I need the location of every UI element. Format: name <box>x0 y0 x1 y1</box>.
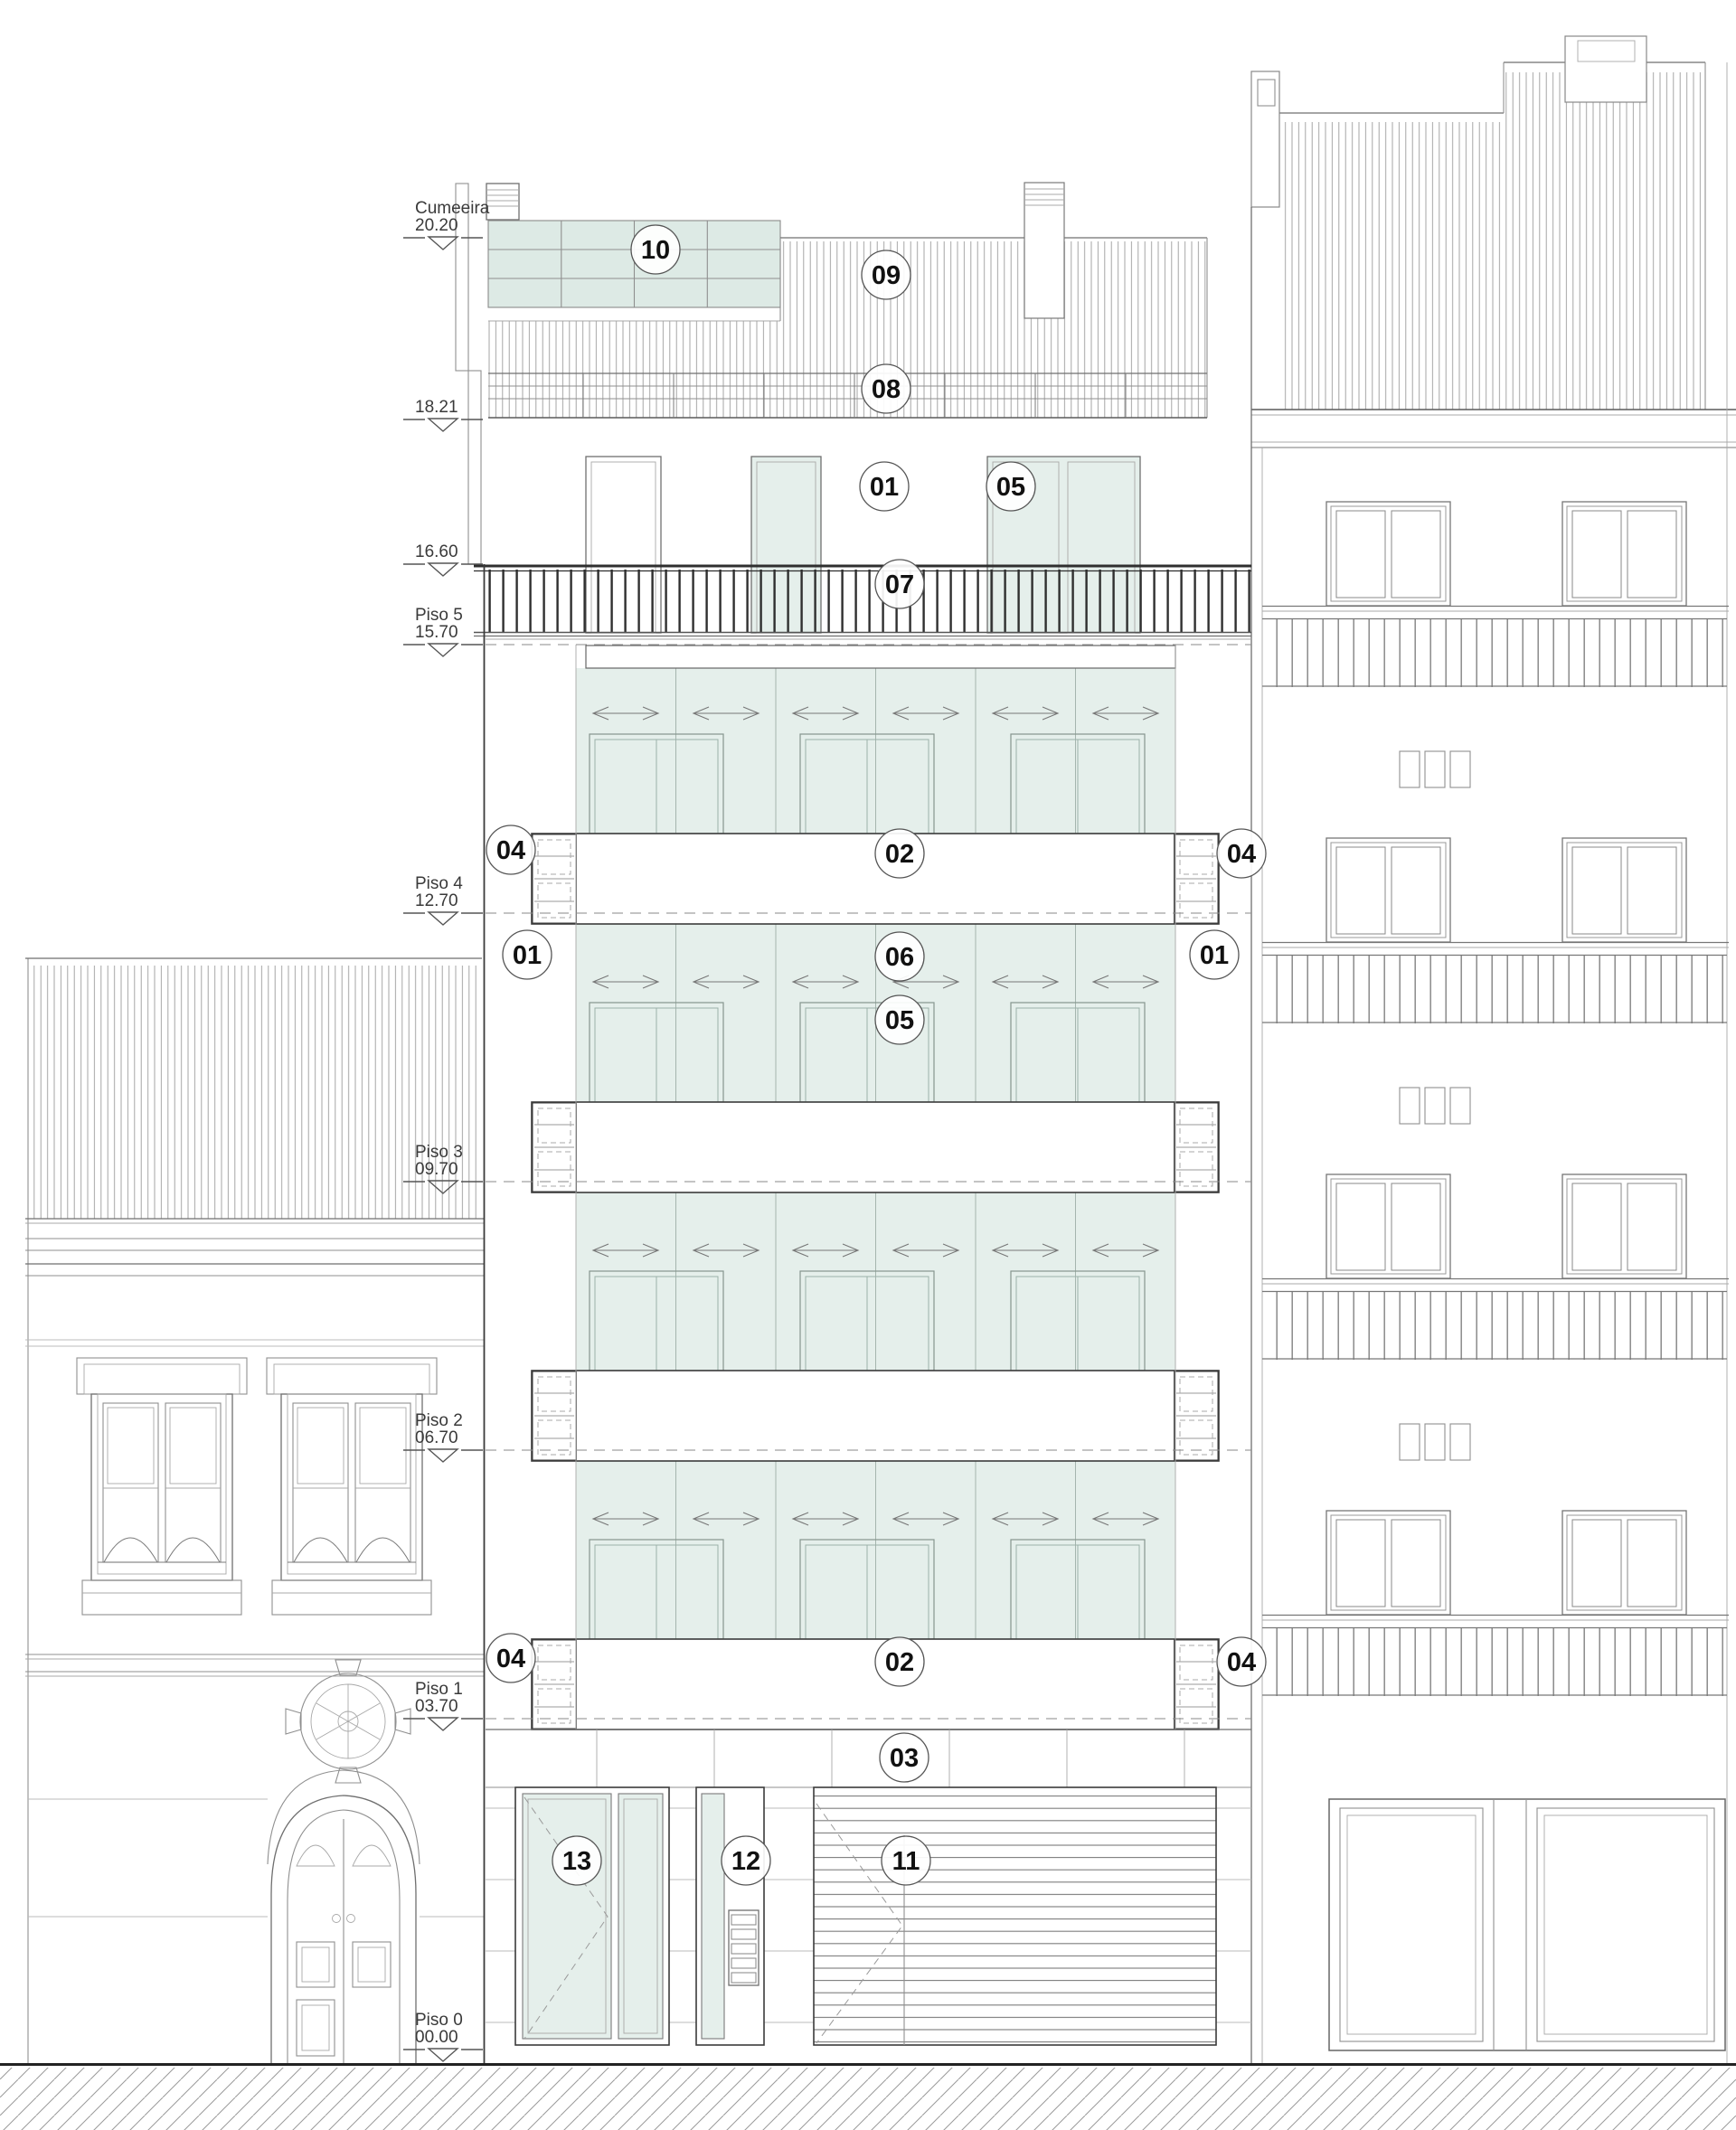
callout-10-solar: 10 <box>631 225 680 274</box>
level-triangle-icon <box>403 237 483 250</box>
facade-elevation-svg: Cumeeira 20.20 18.21 16.60 Piso 5 15.70 … <box>0 0 1736 2130</box>
level-marker-piso5: Piso 5 15.70 <box>403 606 483 656</box>
svg-text:11: 11 <box>892 1847 920 1876</box>
svg-text:05: 05 <box>885 1006 914 1035</box>
svg-text:10: 10 <box>641 236 670 265</box>
level-elevation: 20.20 <box>415 216 458 235</box>
level-triangle-icon <box>403 912 483 925</box>
level-elevation: 18.21 <box>415 398 458 417</box>
svg-text:08: 08 <box>872 375 901 404</box>
level-name: Piso 3 <box>415 1143 463 1162</box>
svg-text:07: 07 <box>885 570 914 599</box>
callout-01-penthouse: 01 <box>860 462 909 511</box>
callout-09-roof: 09 <box>862 250 910 299</box>
svg-text:13: 13 <box>562 1847 591 1876</box>
callout-02-upper: 02 <box>875 829 924 878</box>
entry-door-12 <box>696 1787 764 2045</box>
svg-text:04: 04 <box>496 1645 525 1673</box>
svg-text:04: 04 <box>1227 1648 1256 1677</box>
balcony-band-piso3 <box>532 1102 1219 1192</box>
callout-03-plinth: 03 <box>880 1733 929 1782</box>
roof-box <box>1565 36 1646 102</box>
callout-04-upper-right: 04 <box>1217 829 1266 878</box>
roof-solar-panels <box>488 221 780 307</box>
beam <box>586 646 1175 668</box>
building-left-neighbour <box>25 958 484 2064</box>
svg-text:02: 02 <box>885 1648 914 1677</box>
left-building-arched-door <box>268 1770 420 2064</box>
chimney-left <box>486 184 519 220</box>
svg-text:01: 01 <box>513 941 542 970</box>
left-building-cornice <box>25 1239 484 1346</box>
callout-12-service-door: 12 <box>722 1836 770 1885</box>
callout-04-lower-left: 04 <box>486 1634 535 1682</box>
level-marker-1821: 18.21 <box>403 398 483 431</box>
level-elevation: 03.70 <box>415 1697 458 1716</box>
roof-eave-band <box>488 373 1207 418</box>
callout-06-glazing: 06 <box>875 932 924 981</box>
callout-07-railing: 07 <box>875 560 924 608</box>
level-triangle-icon <box>403 563 483 576</box>
svg-text:05: 05 <box>996 473 1025 502</box>
svg-text:03: 03 <box>890 1744 919 1773</box>
right-building-cornice <box>1251 410 1736 448</box>
level-elevation: 06.70 <box>415 1428 458 1447</box>
callout-05-glazing: 05 <box>875 995 924 1044</box>
level-triangle-icon <box>403 419 483 431</box>
svg-text:12: 12 <box>731 1847 760 1876</box>
svg-text:04: 04 <box>1227 840 1256 869</box>
elevation-drawing: Cumeeira 20.20 18.21 16.60 Piso 5 15.70 … <box>0 0 1736 2130</box>
svg-text:01: 01 <box>1200 941 1229 970</box>
level-name: Cumeeira <box>415 199 490 218</box>
level-marker-1660: 16.60 <box>403 542 483 576</box>
level-triangle-icon <box>403 1449 483 1462</box>
level-name: Piso 1 <box>415 1680 463 1699</box>
terrace-railing <box>474 566 1251 633</box>
level-marker-piso4: Piso 4 12.70 <box>403 874 483 925</box>
chimney-right <box>1024 183 1064 318</box>
level-elevation: 00.00 <box>415 2028 458 2047</box>
svg-text:06: 06 <box>885 943 914 972</box>
building-center-subject <box>456 183 1251 2064</box>
level-marker-cumeeira: Cumeeira 20.20 <box>403 199 490 250</box>
right-building-floor-3 <box>1262 838 1729 1023</box>
garage-door-11 <box>814 1787 1216 2045</box>
callout-08-eave: 08 <box>862 364 910 413</box>
right-building-storefront <box>1329 1799 1725 2050</box>
entry-door-13 <box>515 1787 669 2045</box>
parapet-lower <box>468 371 481 564</box>
curtain-wall-floor-2 <box>576 1192 1175 1371</box>
callout-05-penthouse: 05 <box>986 462 1035 511</box>
level-elevation: 16.60 <box>415 542 458 561</box>
balcony-band-piso4 <box>532 834 1219 924</box>
level-elevation: 09.70 <box>415 1160 458 1179</box>
level-marker-piso2: Piso 2 06.70 <box>403 1411 483 1462</box>
curtain-wall-floor-4 <box>576 646 1175 834</box>
left-building-mansard-roof <box>25 958 484 1223</box>
ground-hatch <box>0 2068 1736 2130</box>
level-name: Piso 5 <box>415 606 463 625</box>
left-building-band <box>25 1654 484 1676</box>
level-name: Piso 4 <box>415 874 463 893</box>
balcony-band-piso2 <box>532 1371 1219 1461</box>
callout-04-lower-right: 04 <box>1217 1637 1266 1686</box>
left-building-window-1 <box>77 1358 247 1615</box>
level-triangle-icon <box>403 644 483 656</box>
callout-04-upper-left: 04 <box>486 825 535 874</box>
level-marker-piso1: Piso 1 03.70 <box>403 1680 483 1730</box>
level-name: Piso 2 <box>415 1411 463 1430</box>
rosette-ornament <box>286 1660 410 1783</box>
callout-11-garage: 11 <box>882 1836 930 1885</box>
building-right-neighbour <box>1251 36 1736 2064</box>
right-building-floor-2 <box>1262 1174 1729 1360</box>
svg-text:02: 02 <box>885 840 914 869</box>
curtain-wall-floor-1 <box>576 1461 1175 1639</box>
level-marker-piso0: Piso 0 00.00 <box>403 2011 483 2061</box>
svg-text:01: 01 <box>870 473 899 502</box>
svg-text:09: 09 <box>872 261 901 290</box>
balcony-band-piso1 <box>532 1639 1219 1729</box>
callout-01-mid-right: 01 <box>1190 930 1239 979</box>
ground <box>0 2065 1736 2130</box>
svg-text:04: 04 <box>496 836 525 865</box>
callout-02-lower: 02 <box>875 1637 924 1686</box>
left-building-window-2 <box>267 1358 437 1615</box>
right-building-floor-4 <box>1262 502 1729 687</box>
callout-13-entry-door: 13 <box>552 1836 601 1885</box>
right-building-roof <box>1251 36 1705 410</box>
level-triangle-icon <box>403 2049 483 2061</box>
ground-floor <box>486 1729 1251 2045</box>
level-name: Piso 0 <box>415 2011 463 2030</box>
callout-01-mid-left: 01 <box>503 930 552 979</box>
level-triangle-icon <box>403 1718 483 1730</box>
right-building-floor-1 <box>1262 1511 1729 1696</box>
level-elevation: 12.70 <box>415 891 458 910</box>
level-elevation: 15.70 <box>415 623 458 642</box>
